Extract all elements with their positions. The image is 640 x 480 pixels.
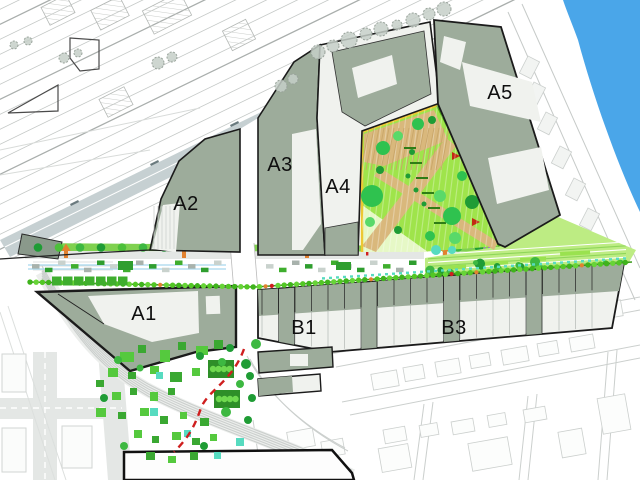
block-a1: [37, 286, 236, 371]
label-a1: A1: [131, 303, 156, 325]
block-b-south-bars: [258, 347, 333, 396]
masterplan-figure: A1 A2 A3 A4 A5 B1 B3: [0, 0, 640, 480]
label-b3: B3: [441, 317, 466, 339]
label-b1: B1: [291, 317, 316, 339]
block-a2: [150, 129, 240, 252]
site-plan-canvas: A1 A2 A3 A4 A5 B1 B3: [0, 0, 640, 480]
label-a3: A3: [267, 154, 292, 176]
label-a2: A2: [173, 193, 198, 215]
label-a5: A5: [487, 82, 512, 104]
label-a4: A4: [325, 176, 350, 198]
building-south-white: [124, 450, 354, 480]
